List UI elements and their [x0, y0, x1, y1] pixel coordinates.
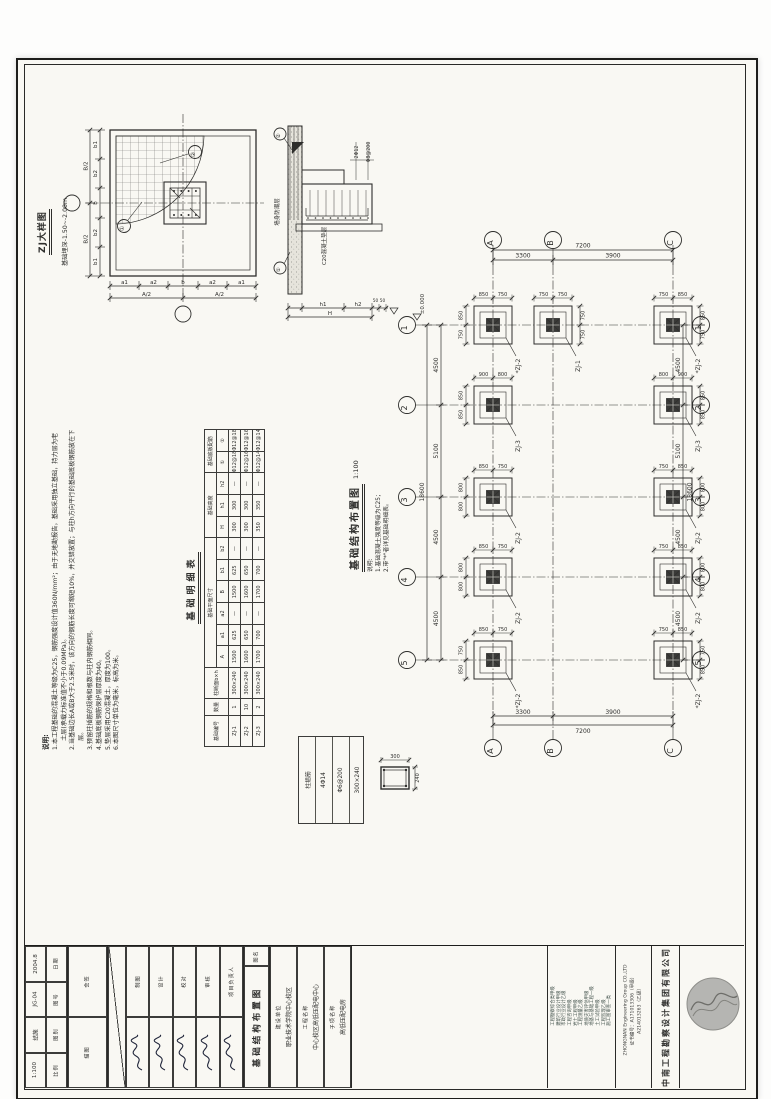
- column-dim-h: 240: [415, 773, 421, 783]
- drawing-name: 基础结构布置图: [251, 987, 263, 1068]
- tb-diagonal-cell: [108, 946, 126, 1088]
- dim-col-0: 3300: [515, 709, 530, 716]
- schedule-cell: 300: [241, 516, 253, 538]
- dim-a: a2: [150, 280, 157, 286]
- footing-dim: 800: [459, 483, 465, 493]
- tb-field-label-比例: 比例: [46, 1053, 67, 1089]
- dim-50: 50: [380, 298, 386, 304]
- schedule-cell: 300×240: [241, 668, 253, 699]
- tb-drawing-name: 图名 基础结构布置图: [243, 946, 269, 1088]
- footing-dim: 800: [498, 372, 508, 378]
- footing-dim: 800: [459, 582, 465, 592]
- tb-qualifications: 工程勘察综合类甲级建筑行业设计甲级市政行业设计乙级工程咨询甲级岩土工程甲级工程测…: [547, 946, 615, 1088]
- plan-caption: 基础结构布置图1:100 说明: 1.基础混凝土强度等级为C25； 2.带"*"…: [343, 422, 397, 572]
- schedule-header: 基础底板配筋: [205, 430, 217, 473]
- plan-notes-title: 说明:: [368, 558, 374, 572]
- dim-a: a1: [121, 280, 128, 286]
- footing-dim: 800: [701, 582, 707, 592]
- tb-signature-scribble: [220, 1017, 243, 1088]
- footing-dim: 850: [701, 311, 707, 321]
- footing-label: ZJ-2: [695, 612, 702, 624]
- elevation-mark: ±0.000: [420, 293, 426, 314]
- dim-col-total: 7200: [575, 243, 590, 250]
- dim-col-1: 3900: [605, 253, 620, 260]
- schedule-cell: 10: [241, 699, 253, 716]
- note-item-1: 1.本工程基础的混凝土等级为C25，钢筋强度设计值360N/mm²；由于无地勘报…: [52, 428, 70, 750]
- schedule-header: H: [217, 516, 229, 538]
- tb-blank-area: [351, 946, 547, 1088]
- schedule-cell: 1600: [241, 581, 253, 603]
- column-section-detail: 300240: [372, 752, 424, 804]
- tb-signatures: 制图设计校对审核项目负责人: [107, 946, 243, 1088]
- dim-row-2: 4500: [433, 529, 440, 544]
- company-cn: 中南工程勘察设计集团有限公司: [660, 947, 671, 1087]
- plan-note-2: 2.带"*"者详见基础明细表。: [384, 500, 390, 572]
- footing-dim: 750: [659, 544, 669, 550]
- footing-dim: 850: [678, 292, 688, 298]
- footing-dim: 850: [701, 665, 707, 675]
- tb-aux: 会签 描图: [67, 946, 107, 1088]
- foundation-schedule-table: 基础明细表 基础编号数量柱断面b×h基础平面尺寸基础高度基础底板配筋Aa1a2B…: [184, 429, 302, 747]
- dim-b: b1: [93, 141, 99, 148]
- footing-dim: 750: [539, 292, 549, 298]
- tb-certificates: ZHONGNAN Engineering Group CO.,LTD 证书编号：…: [615, 946, 651, 1088]
- schedule-cell: 2: [253, 699, 265, 716]
- dim-h2: h2: [355, 302, 362, 308]
- legend-line-2: 4Φ14: [316, 737, 333, 823]
- schedule-cell: ZJ-2: [241, 716, 253, 747]
- tb-project-子项名称: 子项名称高低压配电房: [324, 946, 351, 1088]
- footing-dim: 800: [459, 502, 465, 512]
- tb-project: 建设单位职业技术学院中心校区工程名称中心校区高低压配电中心子项名称高低压配电房: [269, 946, 351, 1088]
- tb-signature-scribble: [149, 1017, 172, 1088]
- note-item-3: 3.预留柱插筋的规格和根数与柱内钢筋相同。: [87, 428, 96, 750]
- schedule-header: A: [217, 646, 229, 668]
- schedule-cell: —: [241, 473, 253, 495]
- tb-field-value-图号: JG-04: [25, 982, 46, 1018]
- dim-a: b: [181, 280, 185, 286]
- note-item-4: 4.基础底板钢筋保护层厚度为40。: [96, 428, 105, 750]
- schedule-header: b1: [217, 559, 229, 581]
- wall-dpc-label: 墙身防潮层: [273, 198, 281, 226]
- footing-dim: 850: [701, 391, 707, 401]
- footing-dim: 750: [701, 646, 707, 656]
- footing-dim: 750: [558, 292, 568, 298]
- tb-project-建设单位: 建设单位职业技术学院中心校区: [270, 946, 297, 1088]
- dim-col-0: 3300: [515, 253, 530, 260]
- footing-dim: 850: [678, 464, 688, 470]
- schedule-cell: 650: [241, 624, 253, 646]
- schedule-cell: 300: [229, 495, 241, 517]
- dim-row-3: 4500: [675, 611, 682, 626]
- notes-title: 说明:: [42, 734, 50, 750]
- tb-sig-role-项目负责人: 项目负责人: [220, 946, 243, 1017]
- axis-col-C: C: [666, 240, 675, 246]
- schedule-cell: —: [241, 538, 253, 560]
- schedule-cell: Φ12@140: [253, 430, 265, 452]
- legend-line-1: 柱插筋: [299, 737, 316, 823]
- footing-A2: 900800850850ZJ-3: [459, 372, 523, 452]
- schedule-cell: —: [241, 603, 253, 625]
- dim-row-3: 4500: [433, 611, 440, 626]
- schedule-cell: 300×240: [253, 668, 265, 699]
- tb-field-value-比例: 1:100: [25, 1053, 46, 1089]
- schedule-header: h1: [217, 495, 229, 517]
- footing-label: ZJ-3: [515, 440, 522, 452]
- footing-dim: 800: [459, 563, 465, 573]
- axis-col-B: B: [546, 240, 555, 246]
- dim-H: H: [328, 311, 332, 317]
- column-dowel-legend: 柱插筋4Φ14Φ6@200300×240: [298, 736, 364, 824]
- footing-dim: 850: [459, 665, 465, 675]
- cert-number-1: 证书编号：A171013306（甲级）: [630, 974, 635, 1045]
- qualification-line: 工程测量乙级: [579, 986, 585, 1026]
- footing-dim: 850: [479, 544, 489, 550]
- schedule-title: 基础明细表: [184, 553, 201, 624]
- footing-dim: 850: [479, 627, 489, 633]
- schedule-header: B: [217, 581, 229, 603]
- qualification-line: 土工试验甲级: [596, 986, 602, 1026]
- footing-dim: 750: [581, 311, 587, 321]
- schedule-cell: Φ12@180: [229, 451, 241, 473]
- footing-label: *ZJ-2: [515, 358, 522, 373]
- axis-col-C: C: [666, 748, 675, 754]
- footing-label: *ZJ-2: [515, 693, 522, 708]
- zj-detail-title: ZJ大样图: [35, 209, 52, 255]
- footing-dim: 900: [678, 372, 688, 378]
- company-logo: [685, 976, 741, 1032]
- company-en: ZHONGNAN Engineering Group CO.,LTD: [623, 964, 628, 1055]
- footing-dim: 750: [498, 464, 508, 470]
- footing-label: *ZJ-2: [695, 693, 702, 708]
- schedule-cell: —: [229, 603, 241, 625]
- footing-B1: 750750750750ZJ-1: [532, 292, 587, 372]
- schedule-header: h2: [217, 473, 229, 495]
- dim-row-1: 5100: [675, 443, 682, 458]
- footing-label: ZJ-3: [695, 440, 702, 452]
- schedule-cell: ZJ-1: [229, 716, 241, 747]
- axis-row-2: 2: [400, 405, 409, 410]
- footing-dim: 750: [659, 627, 669, 633]
- schedule-cell: 1500: [229, 646, 241, 668]
- qualification-line: 工程监理乙级: [601, 986, 607, 1026]
- dim-a: a1: [238, 280, 245, 286]
- schedule-cell: Φ12@160: [241, 451, 253, 473]
- qualification-line: 市政行业设计乙级: [562, 986, 568, 1026]
- axis-row-4: 4: [400, 577, 409, 582]
- schedule-cell: 625: [229, 624, 241, 646]
- footing-section-drawing: ②①2Φ12Φ8@200墙身防潮层C20混凝土垫层h1h2H5050: [270, 120, 410, 335]
- schedule-header: 基础编号: [205, 716, 229, 747]
- zj-detail-caption: ZJ大样图 基础埋深-1.50~-2.00m: [30, 148, 60, 316]
- axis-col-B: B: [546, 748, 555, 754]
- tb-field-label-图号: 图号: [46, 982, 67, 1018]
- footing-dim: 900: [479, 372, 489, 378]
- schedule-header: a1: [217, 624, 229, 646]
- tb-company: 中南工程勘察设计集团有限公司: [651, 946, 679, 1088]
- section-axis-1: ①: [276, 267, 282, 272]
- drawing-name-label: 图名: [253, 950, 260, 962]
- tb-logo: [679, 946, 744, 1088]
- dim-B: B/2: [84, 161, 90, 170]
- footing-dim: 850: [701, 410, 707, 420]
- zj-detail-depth: 基础埋深-1.50~-2.00m: [62, 198, 69, 266]
- tb-sig-role-设计: 设计: [149, 946, 172, 1017]
- schedule-cell: —: [229, 538, 241, 560]
- qualification-line: 工程勘察综合类甲级: [551, 986, 557, 1026]
- schedule-header: 柱断面b×h: [205, 668, 229, 699]
- tb-field-value-图别: 结施: [25, 1017, 46, 1053]
- footing-dim: 800: [659, 372, 669, 378]
- dim-col-1: 3900: [605, 709, 620, 716]
- dim-col-total: 7200: [575, 728, 590, 735]
- dim-b: b2: [93, 170, 99, 177]
- schedule-cell: Φ12@160: [241, 430, 253, 452]
- zj-footing-detail-drawing: ②①a1a2ba2a1A/2A/2b1b2bb2b1B/2B/2: [58, 118, 273, 328]
- schedule-cell: Φ12@140: [253, 451, 265, 473]
- schedule-cell: ZJ-3: [253, 716, 265, 747]
- footing-label: ZJ-1: [575, 360, 582, 372]
- footing-dim: 750: [498, 292, 508, 298]
- tb-field-value-日期: 2004.8: [25, 946, 46, 982]
- footing-A4: 850750800800ZJ-2: [459, 544, 523, 624]
- schedule-cell: 350: [253, 516, 265, 538]
- note-item-2: 2.当基础边长A或B大于2.5米时，该方向的钢筋长度可缩短10%，并交错放置；与…: [69, 428, 87, 750]
- schedule-header: ②: [217, 430, 229, 452]
- section-callout-2: Φ8@200: [366, 142, 372, 163]
- schedule-cell: 625: [229, 559, 241, 581]
- bedding-label: C20混凝土垫层: [320, 226, 328, 265]
- schedule-header: 基础平面尺寸: [205, 538, 217, 668]
- dim-h1: h1: [320, 302, 327, 308]
- tb-aux-huiqian: 会签: [84, 975, 91, 987]
- footing-dim: 750: [459, 330, 465, 340]
- schedule-cell: —: [253, 473, 265, 495]
- qualification-line: 工程咨询甲级: [567, 986, 573, 1026]
- footing-A3: 850750800800ZJ-2: [459, 464, 523, 544]
- foundation-layout-plan: AABBCC1122334455720033003900330039007200…: [393, 220, 745, 786]
- schedule-cell: 300: [241, 495, 253, 517]
- legend-line-4: 300×240: [350, 737, 366, 823]
- dim-a: a2: [209, 280, 216, 286]
- cert-number-2: A214013263（乙级）: [637, 986, 642, 1034]
- footing-dim: 750: [581, 330, 587, 340]
- footing-dim: 750: [701, 330, 707, 340]
- footing-label: ZJ-2: [695, 532, 702, 544]
- qualification-line: 施工图审查一类: [607, 986, 613, 1026]
- plan-title: 基础结构布置图: [346, 484, 365, 572]
- footing-label: *ZJ-2: [695, 358, 702, 373]
- schedule-cell: 700: [253, 559, 265, 581]
- tb-sig-role-校对: 校对: [173, 946, 196, 1017]
- dim-50: 50: [373, 298, 379, 304]
- footing-A5: 850750750850*ZJ-2: [459, 627, 523, 708]
- footing-dim: 800: [701, 483, 707, 493]
- rebar-mark-1: ①: [119, 226, 126, 231]
- schedule-cell: 1: [229, 699, 241, 716]
- footing-dim: 850: [459, 410, 465, 420]
- tb-signature-scribble: [126, 1017, 149, 1088]
- schedule-cell: Φ12@180: [229, 430, 241, 452]
- footing-dim: 750: [659, 292, 669, 298]
- footing-dim: 850: [459, 391, 465, 401]
- section-callout-1: 2Φ12: [354, 146, 360, 159]
- footing-label: ZJ-2: [515, 532, 522, 544]
- footing-dim: 850: [678, 544, 688, 550]
- dim-row-1: 5100: [433, 443, 440, 458]
- footing-dim: 800: [701, 563, 707, 573]
- plan-scale: 1:100: [352, 460, 360, 479]
- general-notes: 说明: 1.本工程基础的混凝土等级为C25，钢筋强度设计值360N/mm²；由于…: [42, 428, 182, 750]
- dim-row-2: 4500: [675, 529, 682, 544]
- schedule-cell: 650: [241, 559, 253, 581]
- schedule-cell: —: [253, 538, 265, 560]
- footing-dim: 750: [459, 646, 465, 656]
- footing-dim: 750: [498, 544, 508, 550]
- qualification-line: 建筑行业设计甲级: [556, 986, 562, 1026]
- plan-note-1: 1.基础混凝土强度等级为C25；: [376, 491, 382, 572]
- dim-row-0: 4500: [675, 357, 682, 372]
- schedule-header: 基础高度: [205, 473, 217, 538]
- footing-C2: 800900850850ZJ-3: [652, 372, 707, 452]
- footing-dim: 850: [678, 627, 688, 633]
- note-item-6: 6.本图尺寸单位为毫米，标高为米。: [113, 428, 122, 750]
- dim-row-0: 4500: [433, 357, 440, 372]
- axis-row-1: 1: [400, 325, 409, 330]
- schedule-cell: 1700: [253, 646, 265, 668]
- schedule-cell: —: [253, 603, 265, 625]
- tb-project-工程名称: 工程名称中心校区高低压配电中心: [297, 946, 324, 1088]
- legend-line-3: Φ6@200: [333, 737, 350, 823]
- dim-row-total: 18600: [419, 482, 426, 501]
- schedule-cell: 1700: [253, 581, 265, 603]
- tb-signature-scribble: [196, 1017, 219, 1088]
- qualification-line: 岩土工程甲级: [573, 986, 579, 1026]
- rebar-mark-2: ②: [190, 151, 197, 157]
- axis-row-3: 3: [400, 497, 409, 502]
- footing-label: ZJ-2: [515, 612, 522, 624]
- schedule-grid: 基础编号数量柱断面b×h基础平面尺寸基础高度基础底板配筋Aa1a2Bb1b2Hh…: [204, 429, 265, 747]
- schedule-cell: 1600: [241, 646, 253, 668]
- footing-dim: 850: [479, 464, 489, 470]
- tb-signature-scribble: [173, 1017, 196, 1088]
- qualification-line: 地基与基础工程一级: [590, 986, 596, 1026]
- schedule-cell: —: [229, 473, 241, 495]
- dim-b: b1: [93, 258, 99, 265]
- schedule-header: ①: [217, 451, 229, 473]
- schedule-cell: 1500: [229, 581, 241, 603]
- column-dim-w: 300: [390, 754, 400, 760]
- schedule-header: a2: [217, 603, 229, 625]
- footing-dim: 750: [659, 464, 669, 470]
- axis-col-A: A: [486, 240, 495, 246]
- footing-dim: 800: [701, 502, 707, 512]
- dim-A: A/2: [215, 292, 224, 298]
- axis-row-5: 5: [400, 660, 409, 665]
- tb-field-label-日期: 日期: [46, 946, 67, 982]
- tb-fields: 2004.8日期JG-04图号结施图别1:100比例: [25, 946, 67, 1088]
- schedule-header: b2: [217, 538, 229, 560]
- schedule-header: 数量: [205, 699, 229, 716]
- footing-dim: 750: [498, 627, 508, 633]
- title-block: 2004.8日期JG-04图号结施图别1:100比例 会签 描图 制图设计校对审…: [25, 945, 744, 1088]
- footing-A1: 850750850750*ZJ-2: [459, 292, 523, 373]
- schedule-cell: 350: [253, 495, 265, 517]
- tb-field-label-图别: 图别: [46, 1017, 67, 1053]
- dim-B: B/2: [84, 234, 90, 243]
- tb-sig-role-制图: 制图: [126, 946, 149, 1017]
- section-axis-2: ②: [275, 133, 282, 138]
- tb-sig-role-审核: 审核: [196, 946, 219, 1017]
- dim-b: b2: [93, 229, 99, 236]
- tb-aux-miaotu: 描图: [84, 1046, 91, 1058]
- axis-col-A: A: [486, 748, 495, 754]
- footing-dim: 850: [479, 292, 489, 298]
- dim-A: A/2: [142, 292, 151, 298]
- schedule-cell: 300×240: [229, 668, 241, 699]
- footing-dim: 850: [459, 311, 465, 321]
- schedule-cell: 700: [253, 624, 265, 646]
- schedule-cell: 300: [229, 516, 241, 538]
